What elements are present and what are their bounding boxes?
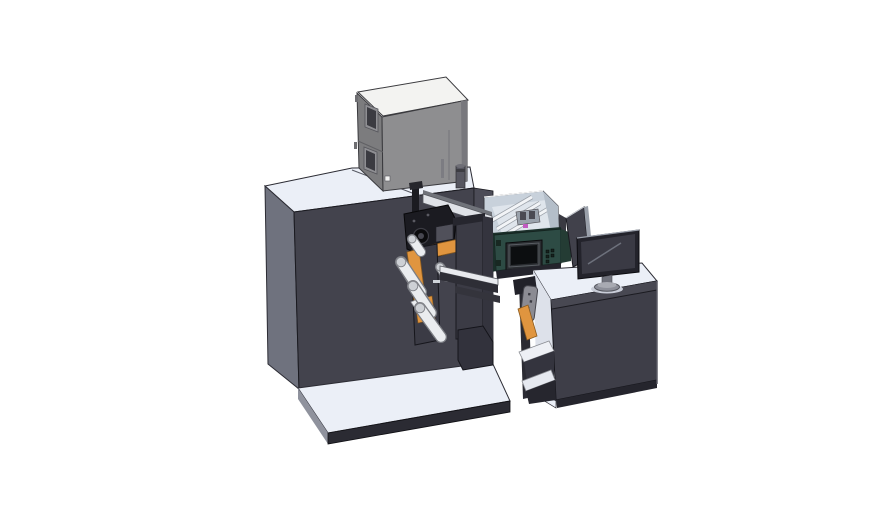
hinge-nub [355,95,358,102]
print-cartridge [520,212,526,220]
electronics-box [354,77,468,191]
print-cartridge-carrier [516,209,540,225]
print-cartridge [529,211,535,219]
hmi-hinge [496,260,501,266]
hmi-hinge [496,240,501,246]
touchscreen-display[interactable] [511,245,537,265]
electronics-box-vent-slot [441,159,444,178]
machine-assembly-render [0,0,888,522]
column-label [433,280,440,283]
head-mount-block [436,224,453,242]
magenta-cartridge [523,224,528,228]
drive-hub-center [418,233,424,239]
filter-cylinder-band [456,169,465,172]
bolt [413,220,416,223]
monitor-base-top [598,282,617,288]
hinge-nub [354,142,357,149]
bolt [427,214,430,217]
filter-cylinder-top [456,164,465,168]
label-sticker [385,176,390,181]
cad-render-canvas [0,0,888,522]
